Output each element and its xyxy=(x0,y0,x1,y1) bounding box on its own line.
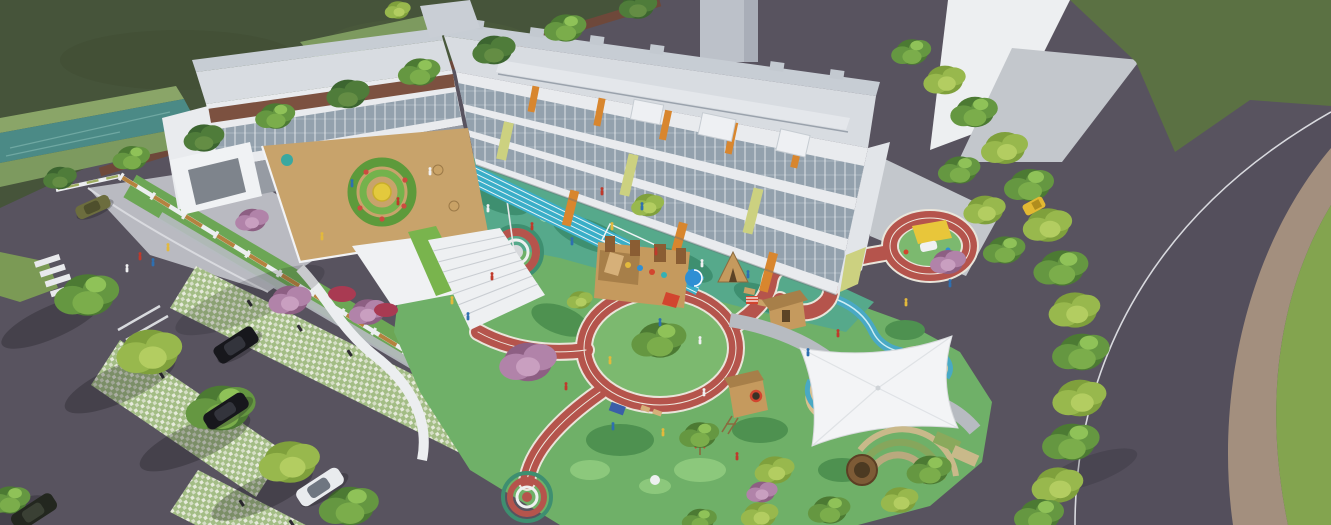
person xyxy=(699,336,702,344)
person xyxy=(703,388,706,396)
person xyxy=(487,204,490,212)
spiral-slide-blue xyxy=(685,269,703,287)
porthole-ring xyxy=(751,391,761,401)
market-stall-awning xyxy=(746,296,758,304)
planter-center xyxy=(854,462,870,478)
white-play-dome xyxy=(650,475,660,485)
person xyxy=(662,428,665,436)
person xyxy=(451,296,454,304)
person xyxy=(747,270,750,278)
terrace-center-table xyxy=(373,183,391,201)
person xyxy=(655,247,658,255)
person xyxy=(611,222,614,230)
tower-shade-face xyxy=(744,0,758,62)
terrace-table2 xyxy=(449,201,459,211)
person xyxy=(701,259,704,267)
flower-bush xyxy=(374,303,398,317)
lower-target-circle xyxy=(503,473,551,521)
person xyxy=(491,272,494,280)
flower-bush xyxy=(328,286,356,302)
person xyxy=(152,258,155,266)
person xyxy=(429,167,432,175)
person xyxy=(321,232,324,240)
person xyxy=(736,452,739,460)
aerial-rendering-canvas: ♿ xyxy=(0,0,1331,525)
person xyxy=(397,197,400,205)
terrace-umbrella xyxy=(281,154,293,166)
person xyxy=(467,312,470,320)
person xyxy=(531,222,534,230)
hut-door xyxy=(782,310,790,322)
person xyxy=(659,318,662,326)
person xyxy=(641,202,644,210)
person xyxy=(905,298,908,306)
person xyxy=(837,329,840,337)
person xyxy=(126,264,129,272)
person xyxy=(571,237,574,245)
lower-target-center xyxy=(522,492,532,502)
person xyxy=(949,279,952,287)
person xyxy=(601,187,604,195)
aerial-rendering-screenshot: ♿ xyxy=(0,0,1331,525)
person xyxy=(565,382,568,390)
person xyxy=(167,243,170,251)
person xyxy=(807,348,810,356)
tent-peak xyxy=(876,386,881,391)
person xyxy=(609,356,612,364)
toy-dot-red xyxy=(904,250,909,255)
person xyxy=(351,179,354,187)
terrace-table1 xyxy=(433,165,443,175)
person xyxy=(139,252,142,260)
person xyxy=(612,422,615,430)
